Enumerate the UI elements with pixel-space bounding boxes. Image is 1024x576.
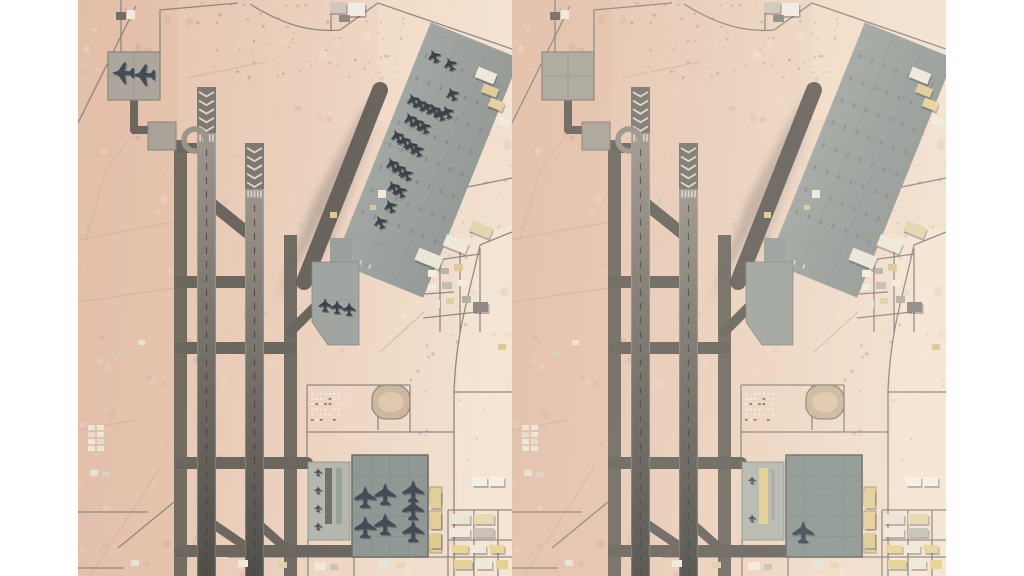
- satellite-panel-after: [512, 0, 946, 576]
- left-white-margin: [0, 0, 78, 576]
- satellite-panel-before: [78, 0, 512, 576]
- right-white-margin: [946, 0, 1024, 576]
- before-after-satellite-comparison: [0, 0, 1024, 576]
- satellite-image-before: [78, 0, 512, 576]
- satellite-image-after: [512, 0, 946, 576]
